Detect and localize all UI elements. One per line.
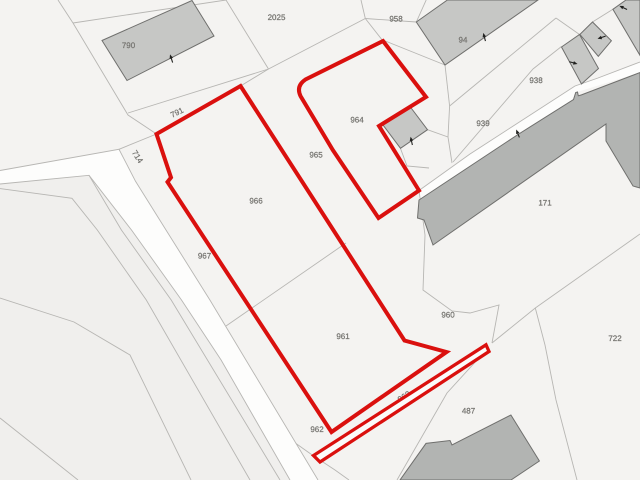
svg-text:964: 964 <box>350 116 364 125</box>
svg-text:962: 962 <box>310 425 324 434</box>
svg-text:171: 171 <box>538 199 552 208</box>
svg-text:965: 965 <box>309 151 323 160</box>
svg-text:790: 790 <box>122 41 136 50</box>
svg-text:94: 94 <box>459 36 468 45</box>
svg-text:938: 938 <box>529 76 543 85</box>
svg-text:939: 939 <box>476 119 490 128</box>
svg-text:487: 487 <box>462 407 476 416</box>
svg-text:722: 722 <box>608 334 622 343</box>
svg-text:958: 958 <box>389 15 403 24</box>
svg-text:2025: 2025 <box>268 13 286 22</box>
svg-text:960: 960 <box>441 311 455 320</box>
svg-text:961: 961 <box>336 332 350 341</box>
svg-text:967: 967 <box>198 252 212 261</box>
svg-text:966: 966 <box>249 197 263 206</box>
